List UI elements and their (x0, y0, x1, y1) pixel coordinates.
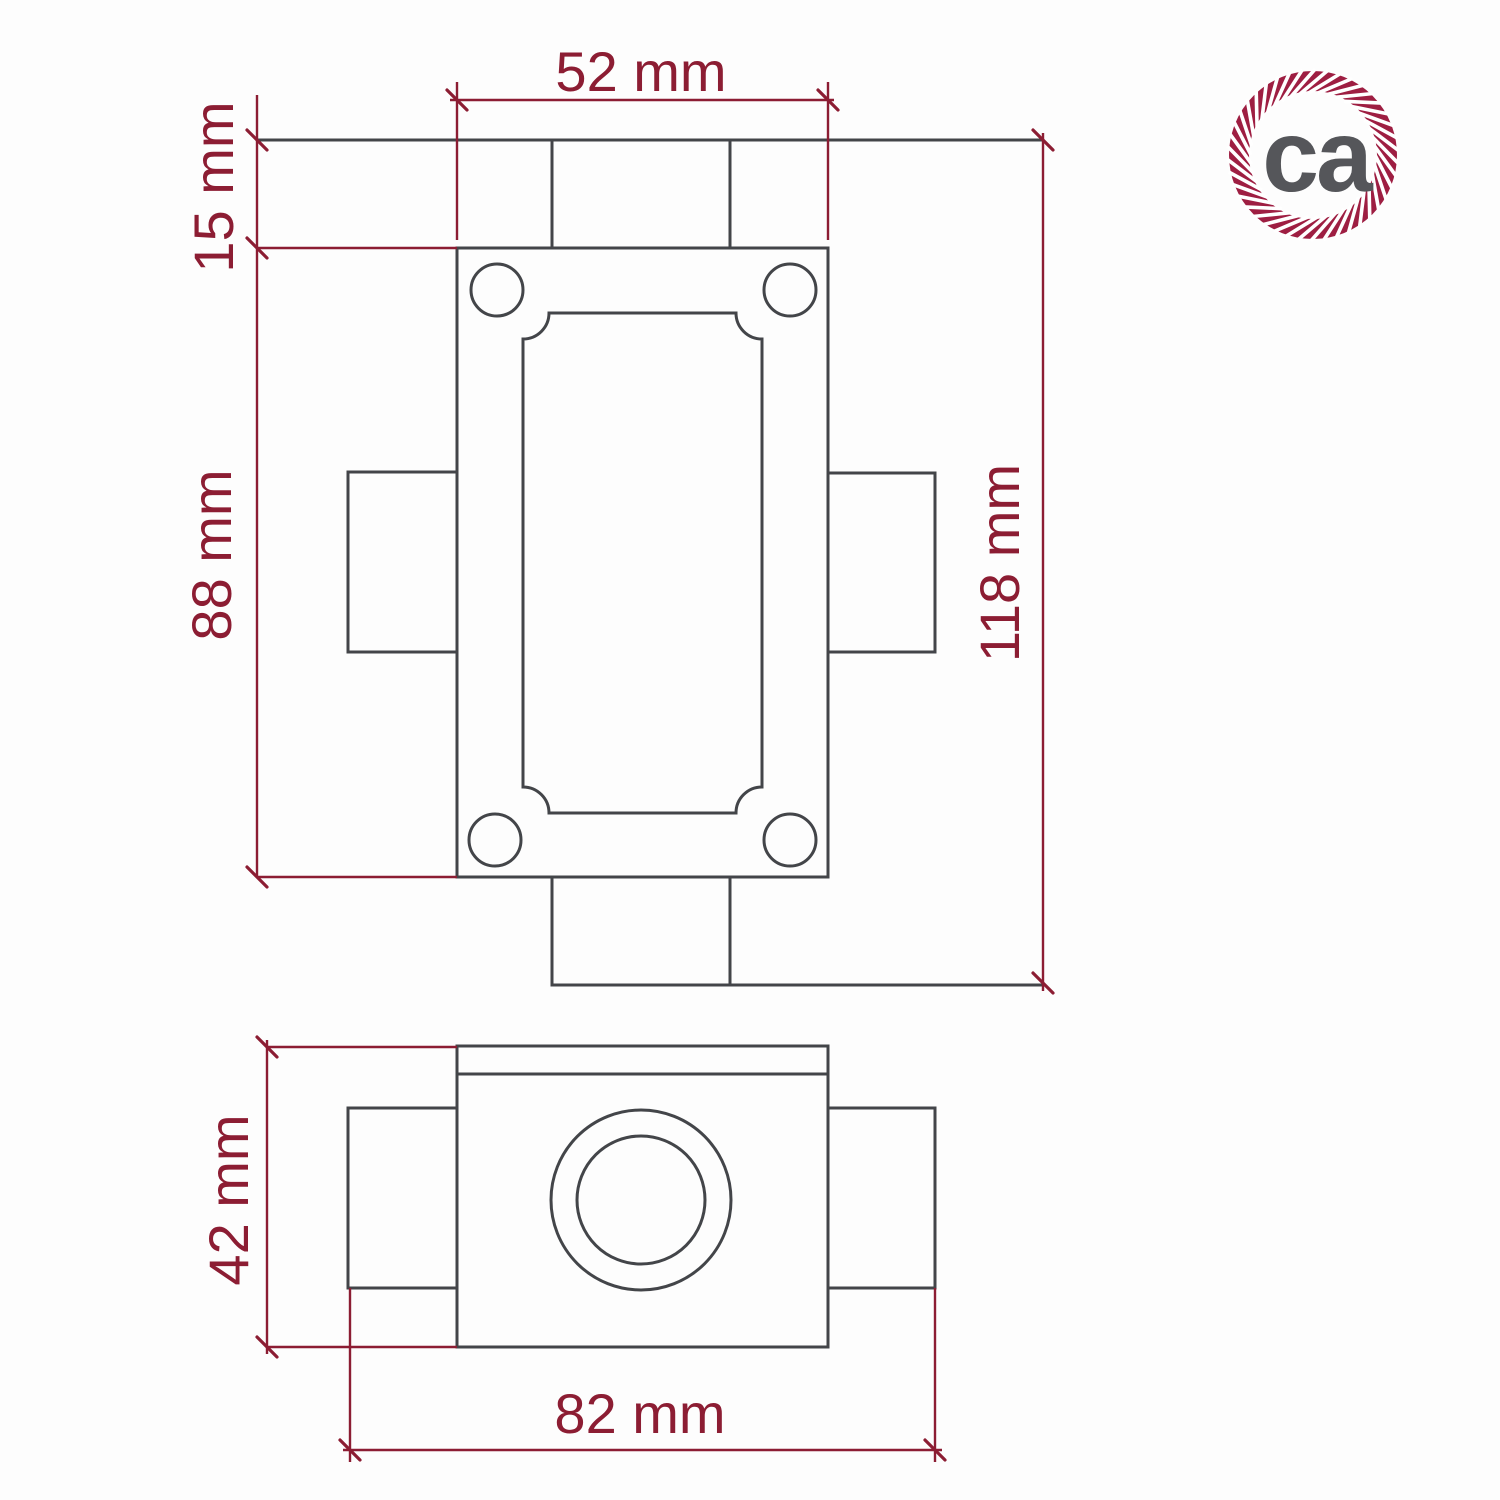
body-side (457, 1046, 828, 1347)
dim-label-82mm: 82 mm (554, 1386, 725, 1442)
top-view (257, 140, 1043, 985)
top-nipple (552, 140, 730, 248)
left-nipple (348, 472, 457, 652)
screw-bottom-left (469, 814, 521, 866)
cover-plate (457, 248, 828, 877)
rope-strand (1256, 91, 1257, 129)
dim-label-88mm: 88 mm (184, 469, 240, 640)
side-view (348, 1046, 935, 1347)
screw-top-right (764, 264, 816, 316)
dim-label-15mm: 15 mm (186, 101, 242, 272)
right-nipple (828, 473, 935, 652)
top-view-dimensions (247, 82, 1053, 993)
dim-label-118mm: 118 mm (972, 464, 1028, 662)
right-nipple-side (828, 1108, 935, 1288)
lid-panel (523, 313, 762, 813)
cable-gland-inner (577, 1136, 705, 1264)
left-nipple-side (348, 1108, 457, 1288)
bottom-nipple (552, 877, 730, 985)
dim-label-42mm: 42 mm (201, 1114, 257, 1285)
screw-bottom-right (764, 814, 816, 866)
screw-top-left (471, 264, 523, 316)
technical-drawing-page: 52 mm 15 mm 88 mm 118 mm 42 mm 82 mm ca (0, 0, 1500, 1500)
brand-monogram: ca (1262, 105, 1369, 207)
dim-label-52mm: 52 mm (555, 44, 726, 100)
